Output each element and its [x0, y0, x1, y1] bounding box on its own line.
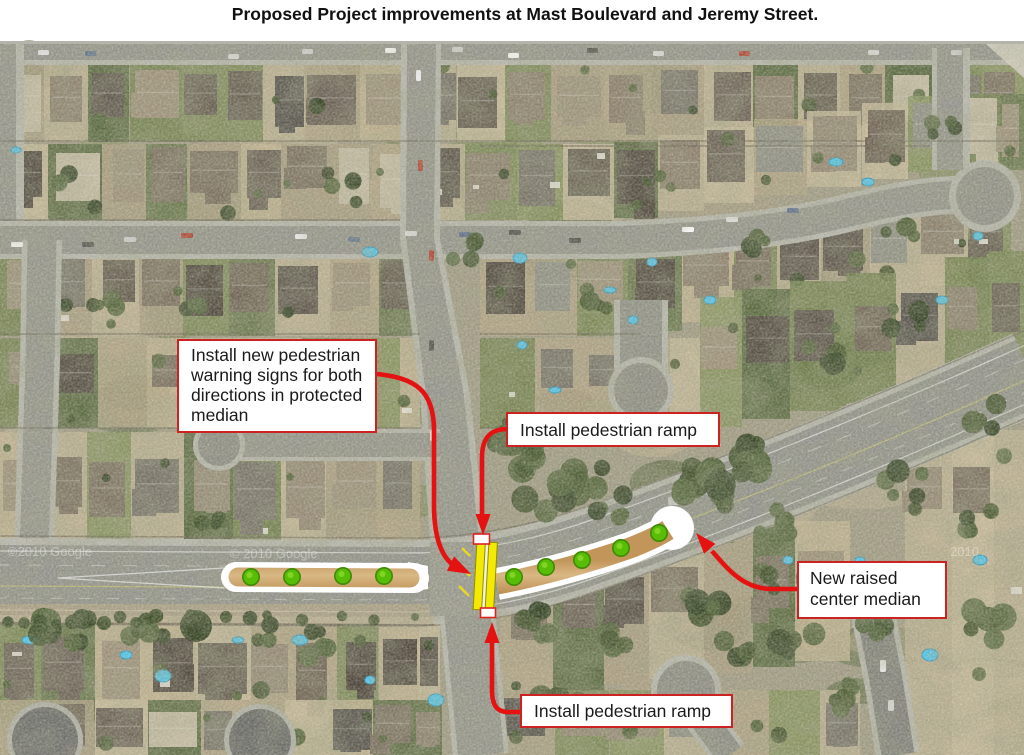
svg-text:directions in protected: directions in protected — [191, 385, 362, 405]
svg-text:2010: 2010 — [950, 544, 979, 559]
svg-text:© 2010 Google: © 2010 Google — [230, 546, 318, 561]
svg-text:Install pedestrian ramp: Install pedestrian ramp — [520, 420, 697, 440]
svg-text:center median: center median — [810, 589, 921, 609]
svg-text:New raised: New raised — [810, 568, 898, 588]
svg-text:©2010 Google: ©2010 Google — [8, 544, 92, 559]
svg-text:warning signs for both: warning signs for both — [190, 365, 362, 385]
svg-text:median: median — [191, 405, 248, 425]
svg-text:Install pedestrian ramp: Install pedestrian ramp — [534, 701, 711, 721]
svg-text:Install new pedestrian: Install new pedestrian — [191, 345, 360, 365]
